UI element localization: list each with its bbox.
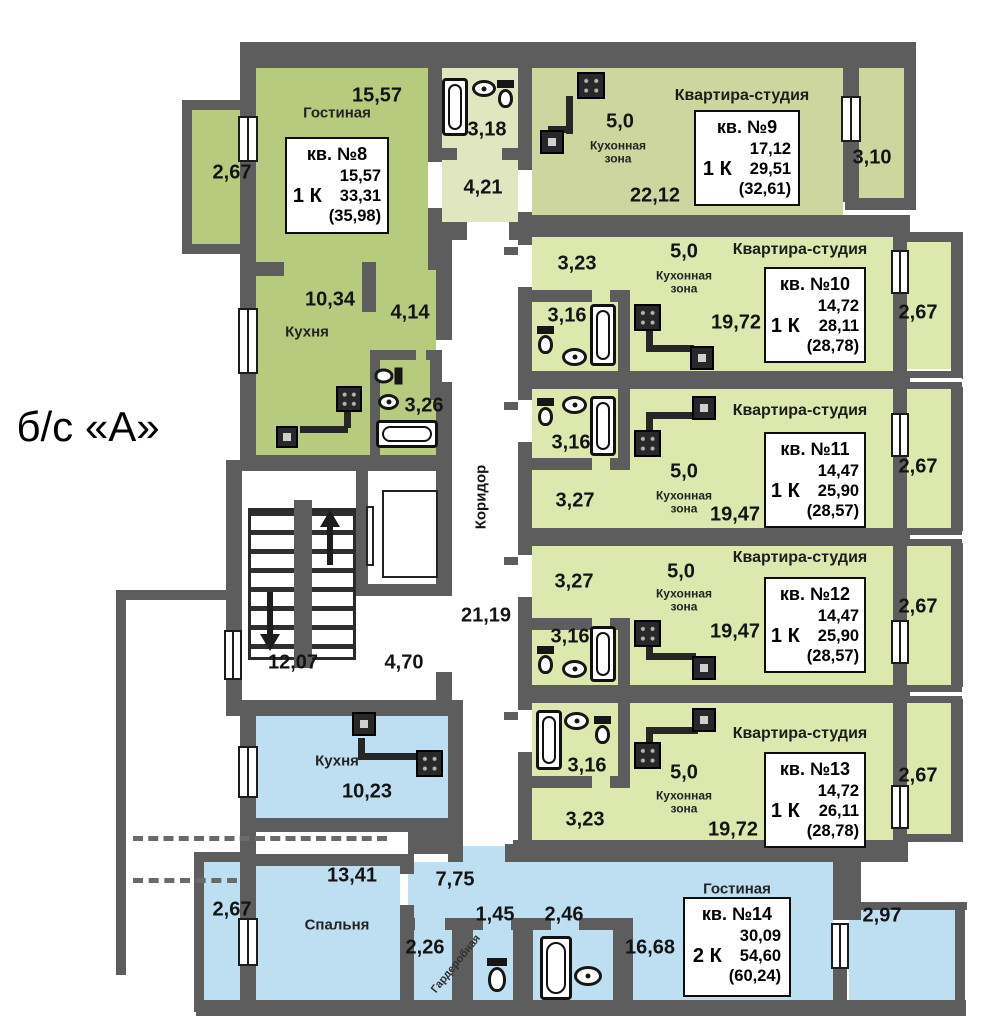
living-area: 14,47	[807, 462, 859, 482]
bathtub-icon	[590, 304, 616, 366]
apt11-balcony-area: 2,67	[899, 456, 938, 479]
wall	[436, 240, 452, 340]
apt8-hall-area: 4,21	[464, 177, 503, 200]
total-area: 28,11	[807, 317, 859, 337]
wall	[845, 198, 916, 210]
wall	[951, 543, 963, 687]
total-area-with-balcony: (35,98)	[329, 207, 381, 227]
room-count: 1 К	[293, 185, 322, 208]
bathtub-icon	[540, 936, 572, 1000]
apt10-type: Квартира-студия	[733, 241, 867, 259]
wall	[951, 232, 963, 379]
apt12-kitchen-area: 5,0	[667, 561, 695, 584]
apt13-hall-area: 3,23	[566, 809, 605, 832]
apt8-balcony-area: 2,67	[213, 162, 252, 185]
apt9-kitchen-area: 5,0	[606, 111, 634, 134]
apartment-info-box-14: кв. №14 2 К 30,09 54,60 (60,24)	[683, 897, 791, 997]
living-area: 14,72	[807, 297, 859, 317]
stair-rail	[294, 500, 312, 668]
stair-down-arrow-icon	[260, 634, 280, 651]
apt14-wc-area: 1,45	[476, 904, 515, 927]
apt11-main-area: 19,47	[710, 504, 760, 527]
corridor-area: 21,19	[461, 605, 511, 628]
wall	[408, 818, 463, 854]
wall	[618, 703, 630, 788]
apt8-kitchen-name: Кухня	[285, 324, 329, 341]
window	[224, 630, 242, 680]
wall	[240, 455, 452, 471]
apt11-kitchen-area: 5,0	[670, 461, 698, 484]
stove-icon	[577, 72, 605, 99]
living-area: 17,12	[739, 140, 791, 160]
apartment-info-box-10: кв. №10 1 К 14,72 28,11 (28,78)	[764, 267, 866, 363]
wall	[907, 232, 963, 242]
wall	[356, 584, 452, 596]
apartment-number: кв. №8	[307, 144, 367, 165]
corridor-label: Коридор	[473, 465, 490, 530]
apt8-bathroom2-area: 3,26	[405, 395, 444, 418]
toilet-icon	[537, 646, 554, 674]
apartment-info-box-8: кв. №8 1 К 15,57 33,31 (35,98)	[285, 137, 389, 234]
apartment-number: кв. №11	[780, 439, 849, 460]
toilet-icon	[375, 368, 403, 385]
wall	[907, 834, 963, 842]
sink-icon	[540, 130, 564, 154]
wall	[196, 1000, 966, 1016]
stove-icon	[416, 750, 443, 777]
door-leaf	[400, 866, 414, 874]
stove-icon	[634, 304, 661, 331]
toilet-icon	[537, 326, 554, 354]
wall	[428, 60, 442, 162]
apt13-bathroom-area: 3,16	[568, 755, 607, 778]
toilet-icon	[497, 80, 514, 108]
sink-icon	[690, 346, 714, 370]
apartment-number: кв. №9	[717, 117, 777, 138]
apt14-hall-area: 7,75	[436, 869, 475, 892]
wall	[116, 590, 240, 600]
door-leaf	[505, 844, 513, 862]
apt14-kitchen-name: Кухня	[315, 753, 359, 770]
wall	[182, 244, 252, 254]
wall	[951, 699, 963, 842]
apt11-hall-area: 3,27	[556, 490, 595, 513]
wall	[532, 290, 592, 302]
toilet-icon	[487, 958, 507, 992]
wall	[370, 350, 416, 360]
stove-icon	[634, 430, 661, 457]
window	[238, 116, 258, 162]
dashed-line	[133, 836, 387, 841]
wall	[833, 862, 861, 920]
kitchen-counter	[358, 753, 420, 760]
apt8-kitchen-area: 10,34	[305, 289, 355, 312]
apt9-main-area: 22,12	[630, 185, 680, 208]
wall	[182, 100, 192, 254]
room-count: 1 К	[771, 315, 800, 338]
living-area: 14,72	[807, 782, 859, 802]
apartment-number: кв. №10	[780, 274, 850, 295]
room-count: 1 К	[771, 625, 800, 648]
apartment-number: кв. №12	[780, 584, 850, 605]
apartment-info-box-9: кв. №9 1 К 17,12 29,51 (32,61)	[694, 110, 800, 206]
living-area: 30,09	[729, 927, 781, 947]
wall	[182, 100, 252, 110]
room-count: 1 К	[771, 480, 800, 503]
room-count: 2 К	[693, 945, 722, 968]
apt10-bathroom-area: 3,16	[548, 305, 587, 328]
total-area: 33,31	[329, 187, 381, 207]
stairwell-area: 12,07	[268, 652, 318, 675]
apt12-balcony-area: 2,67	[899, 596, 938, 619]
room-count: 1 К	[703, 158, 732, 181]
wall	[435, 148, 457, 160]
wall	[518, 42, 532, 170]
wall	[618, 290, 630, 371]
floor-plan: б/с «А» Коридор 21,19 12,07 4,70 15,57 Г…	[0, 0, 1000, 1020]
bathtub-icon	[590, 626, 616, 682]
wall	[513, 930, 533, 1002]
balcony-divider	[910, 535, 962, 539]
wall	[518, 752, 532, 840]
apt13-type: Квартира-студия	[733, 725, 867, 743]
sink-icon	[562, 396, 587, 414]
window	[891, 413, 909, 457]
kitchen-counter	[300, 426, 348, 433]
window	[238, 308, 258, 374]
room-apt9-balcony	[859, 68, 904, 198]
sink-icon	[276, 426, 298, 448]
sink-icon	[564, 712, 589, 730]
wall	[240, 42, 916, 68]
sink-icon	[574, 966, 602, 986]
apt12-hall-area: 3,27	[555, 571, 594, 594]
total-area: 25,90	[807, 627, 859, 647]
wall	[518, 237, 532, 245]
apt11-bathroom-area: 3,16	[552, 432, 591, 455]
apt12-type: Квартира-студия	[733, 549, 867, 567]
apt13-kitchen-name: Кухонная зона	[641, 789, 727, 814]
wall	[833, 969, 847, 1002]
wall	[400, 918, 415, 930]
elevator-cab	[382, 490, 438, 578]
apartment-number: кв. №13	[780, 759, 850, 780]
apartment-number: кв. №14	[702, 904, 772, 925]
wall	[518, 371, 962, 389]
window	[891, 620, 909, 664]
apartment-info-box-12: кв. №12 1 К 14,47 25,90 (28,57)	[764, 577, 866, 673]
stair-down-arrow-icon	[267, 592, 273, 636]
sink-icon	[352, 712, 376, 736]
total-area-with-balcony: (28,57)	[807, 502, 859, 522]
bathtub-icon	[376, 420, 438, 448]
wall	[226, 700, 463, 716]
toilet-icon	[594, 716, 611, 744]
balcony-divider	[910, 378, 962, 382]
apt14-kitchen-area: 10,23	[342, 781, 392, 804]
apt14-balcony-left-area: 2,67	[213, 899, 252, 922]
apt10-hall-area: 3,23	[558, 253, 597, 276]
apt13-balcony-area: 2,67	[899, 765, 938, 788]
wall	[579, 918, 633, 930]
total-area-with-balcony: (28,78)	[807, 822, 859, 842]
total-area: 25,90	[807, 482, 859, 502]
living-area: 15,57	[329, 167, 381, 187]
elevator-door	[366, 506, 374, 566]
apt9-type: Квартира-студия	[675, 87, 809, 105]
total-area-with-balcony: (32,61)	[739, 180, 791, 200]
sink-icon	[692, 708, 716, 732]
total-area-with-balcony: (28,78)	[807, 337, 859, 357]
apt9-balcony-area: 3,10	[853, 147, 892, 170]
apt11-type: Квартира-студия	[733, 402, 867, 420]
apt10-main-area: 19,72	[711, 312, 761, 335]
sink-icon	[472, 80, 496, 97]
window	[238, 746, 258, 798]
apartment-info-box-11: кв. №11 1 К 14,47 25,90 (28,57)	[764, 432, 866, 528]
sink-icon	[378, 394, 399, 410]
total-area: 54,60	[729, 947, 781, 967]
apt10-balcony-area: 2,67	[899, 302, 938, 325]
apt8-living-name: Гостиная	[303, 105, 371, 122]
window	[891, 250, 909, 294]
wall	[448, 716, 463, 832]
section-label: б/с «А»	[16, 403, 159, 451]
wall	[618, 389, 630, 470]
stair-up-arrow-icon	[320, 510, 340, 527]
stove-icon	[634, 742, 661, 769]
wall	[362, 262, 376, 312]
total-area-with-balcony: (60,24)	[729, 967, 781, 987]
door-leaf	[504, 557, 518, 565]
room-apt14-balcony-left	[204, 862, 240, 1004]
dashed-line	[133, 878, 237, 883]
sink-icon	[692, 396, 716, 420]
wall	[116, 590, 126, 975]
sink-icon	[562, 660, 587, 678]
bathtub-icon	[442, 78, 468, 136]
stove-icon	[336, 386, 362, 412]
apt14-bedroom-name: Спальня	[305, 917, 370, 934]
living-area: 14,47	[807, 607, 859, 627]
apt13-kitchen-area: 5,0	[670, 762, 698, 785]
apt14-living-area: 16,68	[625, 937, 675, 960]
wall	[194, 852, 204, 1012]
wall	[904, 68, 916, 210]
apt14-bathroom-area: 2,46	[545, 904, 584, 927]
door-leaf	[504, 247, 518, 255]
wall	[518, 528, 962, 546]
apt8-bathroom-area: 3,18	[468, 119, 507, 142]
apt10-kitchen-area: 5,0	[670, 241, 698, 264]
apt12-main-area: 19,47	[710, 621, 760, 644]
toilet-icon	[537, 398, 554, 426]
balcony-divider	[910, 692, 962, 696]
wall	[436, 471, 452, 596]
total-area: 29,51	[739, 160, 791, 180]
apt14-wardrobe-area: 2,26	[406, 937, 445, 960]
sink-icon	[562, 348, 587, 366]
wall	[518, 685, 962, 703]
room-count: 1 К	[771, 800, 800, 823]
apartment-info-box-13: кв. №13 1 К 14,72 26,11 (28,78)	[764, 752, 866, 848]
stove-icon	[634, 620, 661, 647]
wall	[532, 776, 592, 788]
apt12-kitchen-name: Кухонная зона	[641, 587, 727, 612]
stair-up-arrow-icon	[327, 527, 333, 565]
apt14-bedroom-area: 13,41	[327, 865, 377, 888]
window	[831, 923, 849, 969]
apt10-kitchen-name: Кухонная зона	[641, 269, 727, 294]
wall	[254, 262, 284, 276]
apt14-balcony-right-area: 2,97	[863, 905, 902, 928]
sink-icon	[692, 656, 716, 680]
total-area-with-balcony: (28,57)	[807, 647, 859, 667]
apt14-living-name: Гостиная	[703, 881, 771, 898]
total-area: 26,11	[807, 802, 859, 822]
bathtub-icon	[536, 710, 562, 770]
wall	[518, 215, 910, 237]
elevator-hall-area: 4,70	[385, 652, 424, 675]
wall	[435, 222, 467, 240]
wall	[532, 458, 592, 470]
apt8-hall2-area: 4,14	[391, 302, 430, 325]
window	[841, 96, 861, 142]
apt13-main-area: 19,72	[708, 819, 758, 842]
wall	[951, 387, 963, 531]
apt12-bathroom-area: 3,16	[551, 626, 590, 649]
bathtub-icon	[590, 396, 616, 456]
kitchen-counter	[646, 653, 696, 660]
window	[238, 918, 258, 966]
wall	[618, 618, 630, 685]
kitchen-counter	[646, 345, 694, 352]
wall	[955, 902, 965, 1008]
door-leaf	[504, 712, 518, 720]
window	[891, 785, 909, 829]
door-leaf	[504, 402, 518, 410]
apt9-kitchen-name: Кухонная зона	[575, 139, 661, 164]
